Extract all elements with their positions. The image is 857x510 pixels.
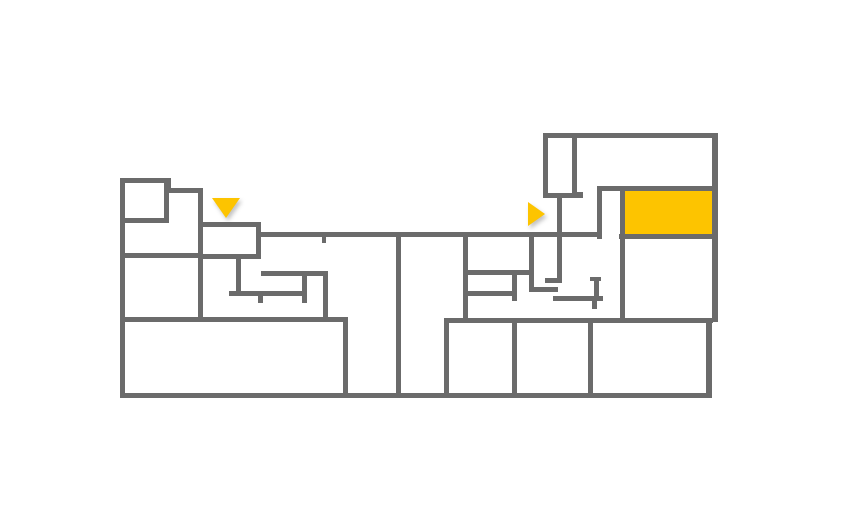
wall — [468, 270, 534, 275]
entrance-marker-right-icon — [528, 202, 545, 226]
wall — [543, 133, 548, 198]
wall — [302, 296, 307, 303]
wall — [164, 178, 169, 223]
wall — [572, 133, 577, 196]
wall — [574, 192, 583, 197]
wall — [557, 198, 562, 283]
wall — [463, 232, 468, 323]
wall — [198, 222, 261, 227]
wall — [120, 178, 125, 398]
highlighted-room[interactable] — [622, 189, 715, 237]
wall — [203, 254, 261, 259]
wall — [588, 318, 593, 398]
floorplan — [0, 0, 857, 510]
wall — [120, 393, 712, 398]
wall — [261, 271, 328, 276]
wall — [597, 186, 718, 191]
wall — [592, 301, 597, 309]
wall — [229, 291, 307, 296]
wall — [529, 232, 534, 292]
wall — [322, 237, 326, 243]
wall — [597, 186, 602, 239]
wall — [706, 322, 712, 398]
wall — [120, 253, 203, 258]
wall — [120, 218, 168, 223]
wall — [261, 232, 601, 237]
wall — [444, 318, 449, 398]
wall — [396, 232, 401, 398]
wall — [468, 291, 513, 296]
wall — [444, 318, 713, 323]
wall — [302, 276, 307, 292]
wall — [712, 133, 718, 322]
entrance-marker-down-icon — [212, 198, 240, 218]
wall — [543, 133, 718, 138]
wall — [545, 278, 562, 283]
wall — [534, 287, 558, 292]
wall — [619, 234, 717, 239]
wall — [343, 317, 348, 398]
wall — [120, 317, 348, 322]
wall — [323, 271, 328, 322]
wall — [258, 296, 263, 303]
wall — [620, 188, 625, 322]
wall — [512, 318, 517, 398]
